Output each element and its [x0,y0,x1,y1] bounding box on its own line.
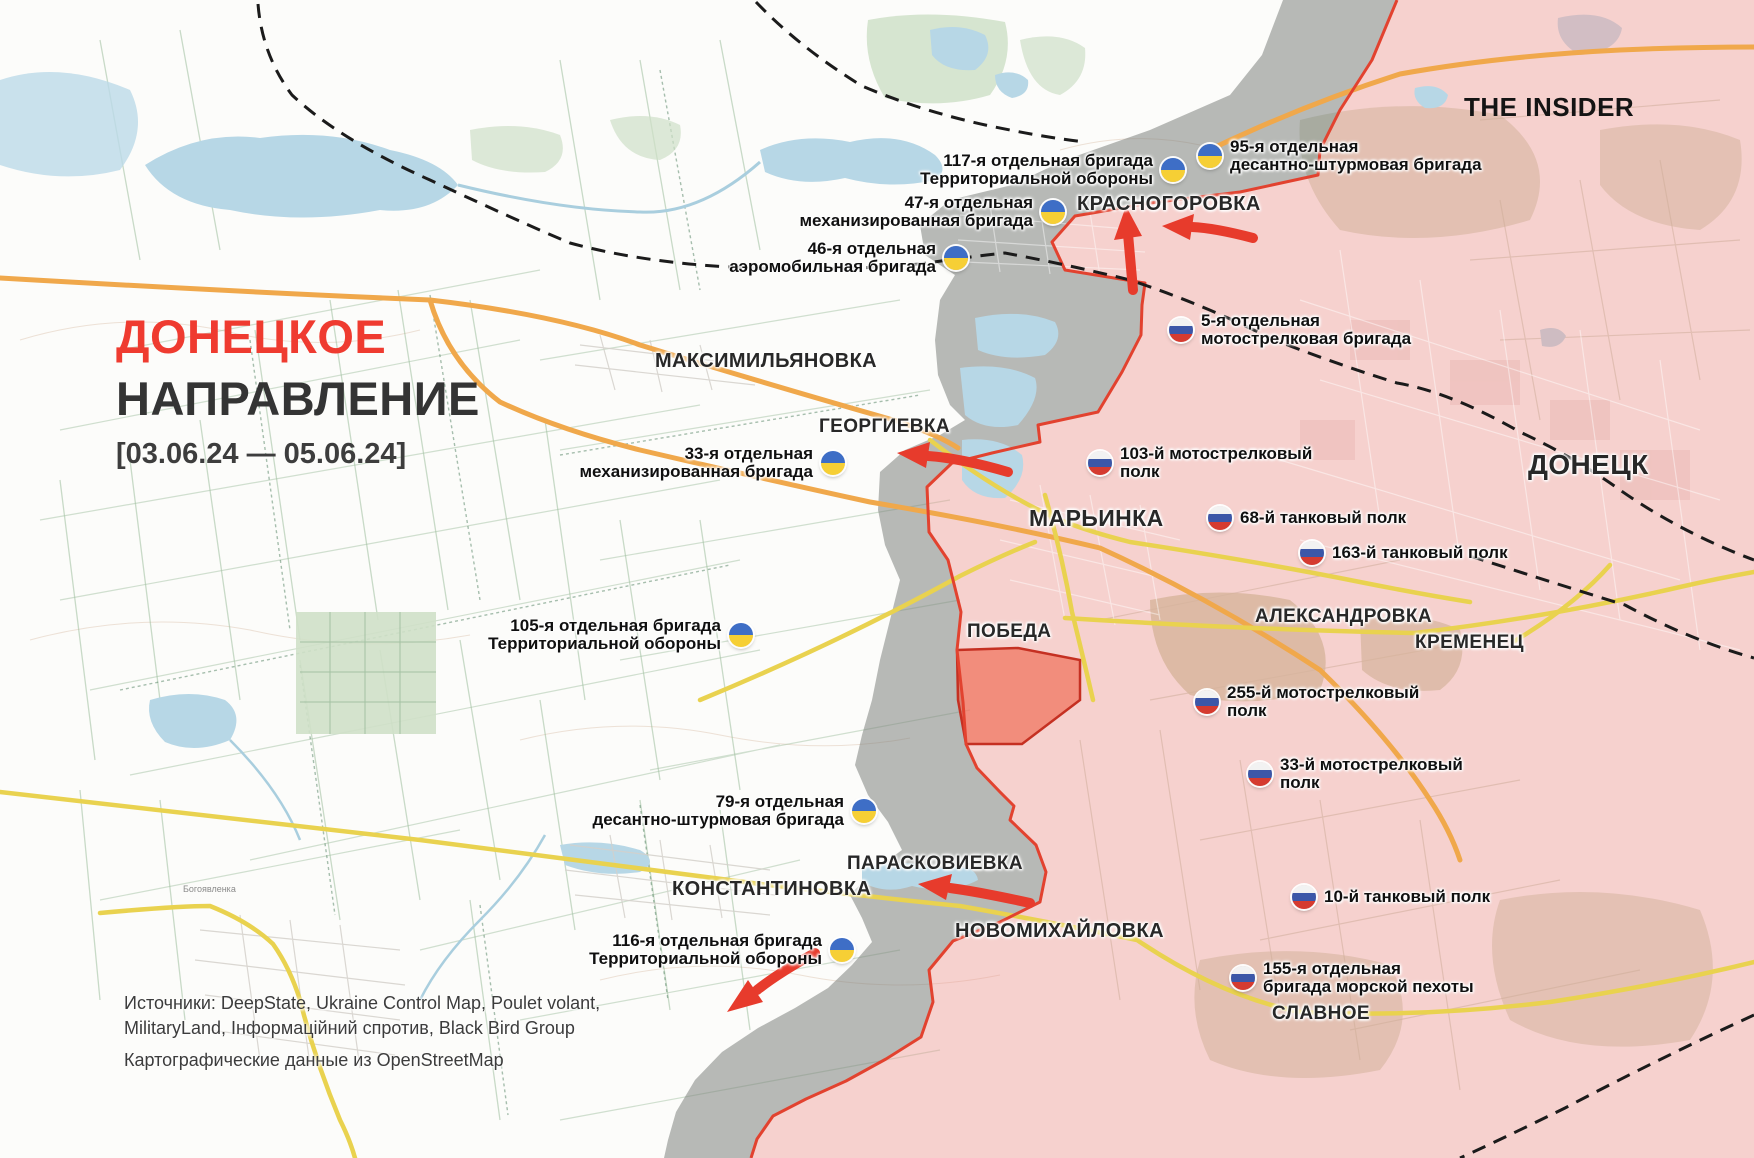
map-canvas: ДОНЕЦКОЕ НАПРАВЛЕНИЕ [03.06.24 — 05.06.2… [0,0,1754,1158]
map-background [0,0,1754,1158]
arrow-krasnohorivka-north [1128,234,1133,290]
